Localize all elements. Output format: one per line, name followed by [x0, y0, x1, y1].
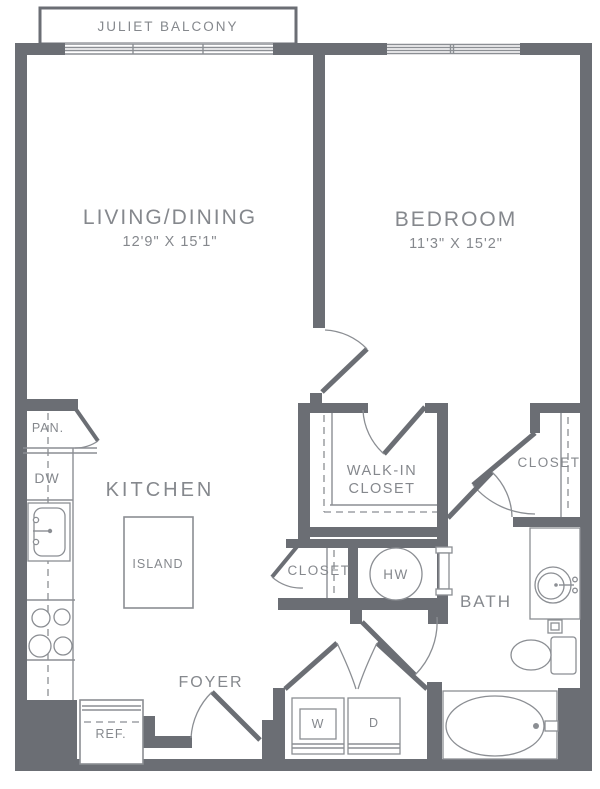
labels: JULIET BALCONY LIVING/DINING 12'9" X 15'… — [32, 19, 581, 741]
bathtub — [443, 691, 558, 759]
wall-walkin-bottom — [298, 527, 448, 537]
wall-wd-left — [273, 688, 285, 771]
wall-left — [15, 43, 27, 771]
floor-plan-drawing: JULIET BALCONY LIVING/DINING 12'9" X 15'… — [0, 0, 600, 789]
floor-plan: JULIET BALCONY LIVING/DINING 12'9" X 15'… — [0, 0, 600, 789]
wall-walkin-top — [298, 403, 368, 413]
hall-closet-label: CLOSET — [287, 563, 350, 578]
wall-living-bedroom — [313, 55, 325, 328]
wall-wd-right — [427, 682, 442, 771]
wall-foyer-stub — [262, 720, 273, 760]
living-window — [65, 43, 273, 55]
walkin-closet-door — [363, 407, 425, 454]
walkin-closet-label-line1: WALK-IN — [347, 463, 417, 479]
refrigerator-label: REF. — [95, 727, 126, 741]
walkin-closet-label-line2: CLOSET — [348, 481, 415, 497]
living-dining-label: LIVING/DINING — [83, 206, 257, 229]
dishwasher-label: DW — [34, 470, 59, 486]
kitchen-sink — [28, 503, 70, 561]
walls — [15, 43, 592, 771]
wall-entry — [152, 736, 192, 748]
entry-door — [191, 692, 260, 740]
bedroom-dimensions: 11'3" X 15'2" — [409, 236, 503, 252]
wall-closet-hw-top — [286, 539, 448, 548]
vanity-sink — [530, 528, 580, 633]
wall-walkin-left — [298, 403, 310, 540]
pantry-label: PAN. — [32, 421, 64, 435]
wall-kitchen-corner — [15, 700, 77, 771]
bedroom-closet-label: CLOSET — [517, 455, 580, 470]
wall-bedroom-closet-stub — [530, 403, 540, 433]
range-burners — [29, 609, 72, 657]
wall-bedroom-door-stub — [310, 393, 322, 405]
bedroom-door — [322, 330, 367, 392]
living-dining-dimensions: 12'9" X 15'1" — [123, 234, 218, 250]
wall-bath-jamb-right — [428, 598, 448, 624]
wall — [273, 43, 387, 55]
bedroom-window — [387, 44, 520, 54]
wall-bath-jamb-left — [350, 598, 362, 624]
bath-cased-opening — [436, 547, 452, 595]
laundry-fixtures — [292, 698, 400, 754]
kitchen-label: KITCHEN — [106, 479, 215, 501]
bedroom-label: BEDROOM — [395, 208, 518, 231]
bath-label: BATH — [460, 592, 512, 611]
foyer-label: FOYER — [178, 674, 243, 691]
bath-fixtures — [436, 528, 580, 759]
toilet — [511, 637, 576, 674]
wall-pantry-top — [27, 399, 78, 411]
washer-label: W — [312, 717, 325, 731]
island-label: ISLAND — [132, 557, 183, 571]
water-heater-label: HW — [383, 567, 409, 582]
pantry-shelf-lines — [23, 448, 97, 453]
wall-hall-closet-bottom — [278, 598, 358, 610]
balcony-label: JULIET BALCONY — [97, 19, 238, 34]
wall-bedroom-closet-bottom — [513, 517, 592, 527]
pantry-door — [75, 408, 98, 448]
dryer-label: D — [369, 716, 379, 730]
wall-tub-side — [558, 688, 592, 771]
bedroom-closet-door — [473, 433, 535, 514]
